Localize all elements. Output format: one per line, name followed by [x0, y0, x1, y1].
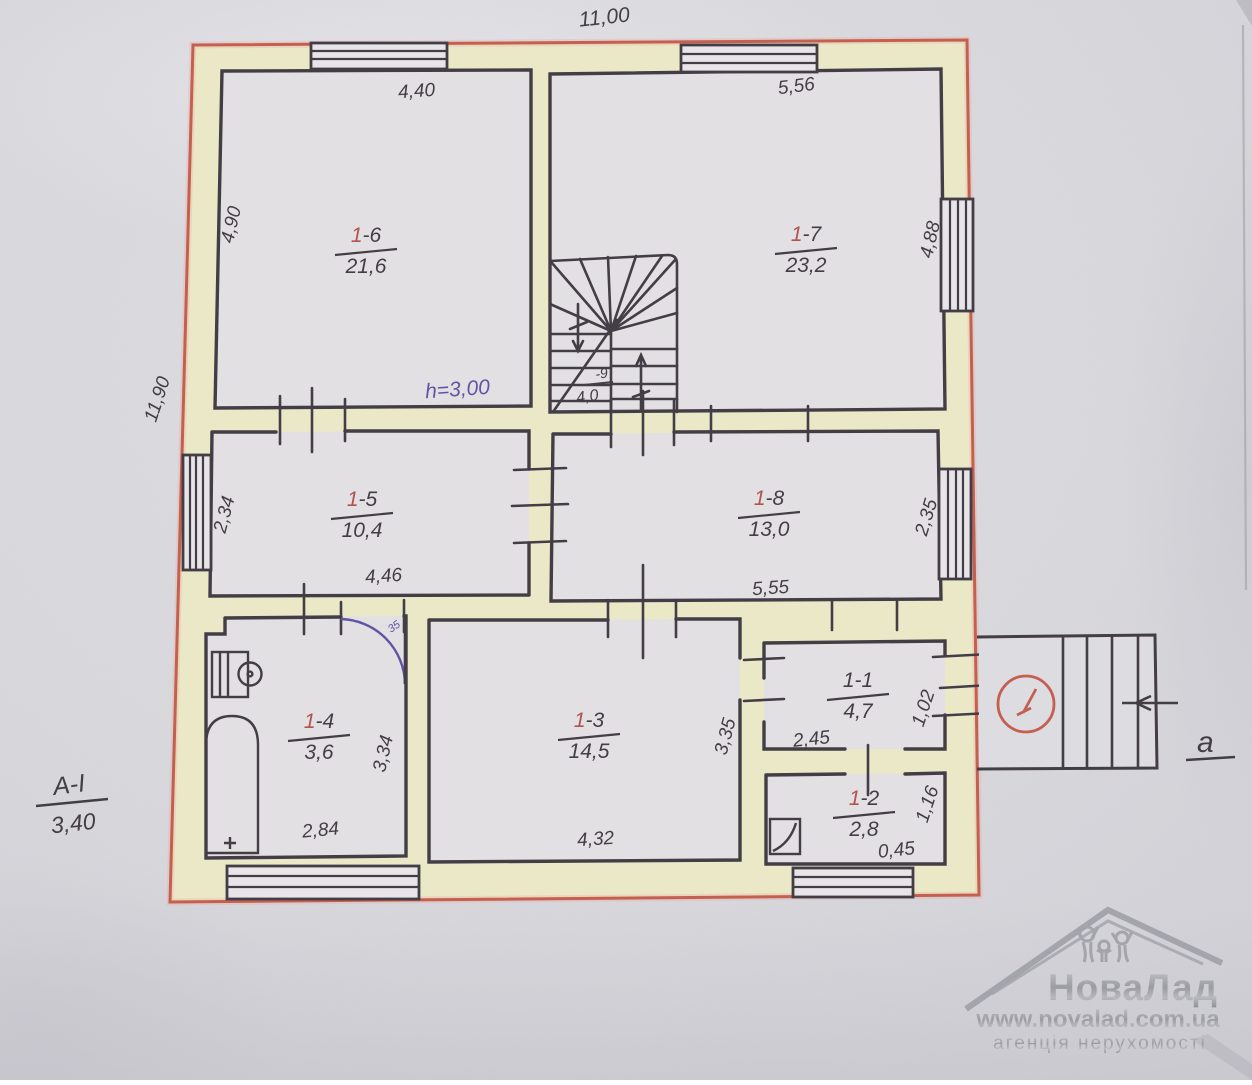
svg-text:1-2: 1-2 [849, 787, 880, 810]
svg-text:4,7: 4,7 [843, 700, 874, 723]
svg-text:4,32: 4,32 [576, 828, 615, 852]
svg-text:13,0: 13,0 [749, 518, 790, 541]
svg-text:1-7: 1-7 [791, 223, 823, 246]
svg-text:2,45: 2,45 [791, 727, 831, 752]
svg-text:1-8: 1-8 [754, 487, 785, 510]
svg-text:a: a [1197, 726, 1214, 759]
svg-text:-9: -9 [594, 364, 609, 382]
svg-text:4,46: 4,46 [364, 565, 403, 589]
svg-text:14,5: 14,5 [569, 740, 610, 763]
svg-text:h=3,00: h=3,00 [424, 376, 491, 403]
svg-text:21,6: 21,6 [345, 255, 387, 278]
svg-text:1-5: 1-5 [347, 488, 378, 511]
svg-text:10,4: 10,4 [342, 519, 383, 542]
svg-text:НоваЛад: НоваЛад [1048, 967, 1218, 1008]
svg-text:4,0: 4,0 [575, 387, 599, 407]
svg-text:1-1: 1-1 [843, 669, 873, 692]
svg-text:1-4: 1-4 [304, 710, 334, 733]
svg-text:3,40: 3,40 [50, 808, 97, 839]
svg-text:4,40: 4,40 [397, 80, 436, 104]
svg-text:23,2: 23,2 [785, 254, 827, 277]
svg-text:А-І: А-І [49, 769, 86, 801]
svg-text:2,84: 2,84 [300, 818, 340, 842]
svg-text:2,8: 2,8 [848, 818, 879, 841]
svg-text:1-6: 1-6 [351, 224, 382, 247]
svg-text:3,6: 3,6 [304, 741, 334, 764]
svg-text:0,45: 0,45 [877, 838, 916, 863]
svg-text:1-3: 1-3 [574, 709, 605, 732]
svg-text:www.novalad.com.ua: www.novalad.com.ua [975, 1006, 1220, 1033]
svg-text:5,55: 5,55 [751, 577, 790, 601]
svg-text:агенція нерухомості: агенція нерухомості [993, 1033, 1207, 1054]
